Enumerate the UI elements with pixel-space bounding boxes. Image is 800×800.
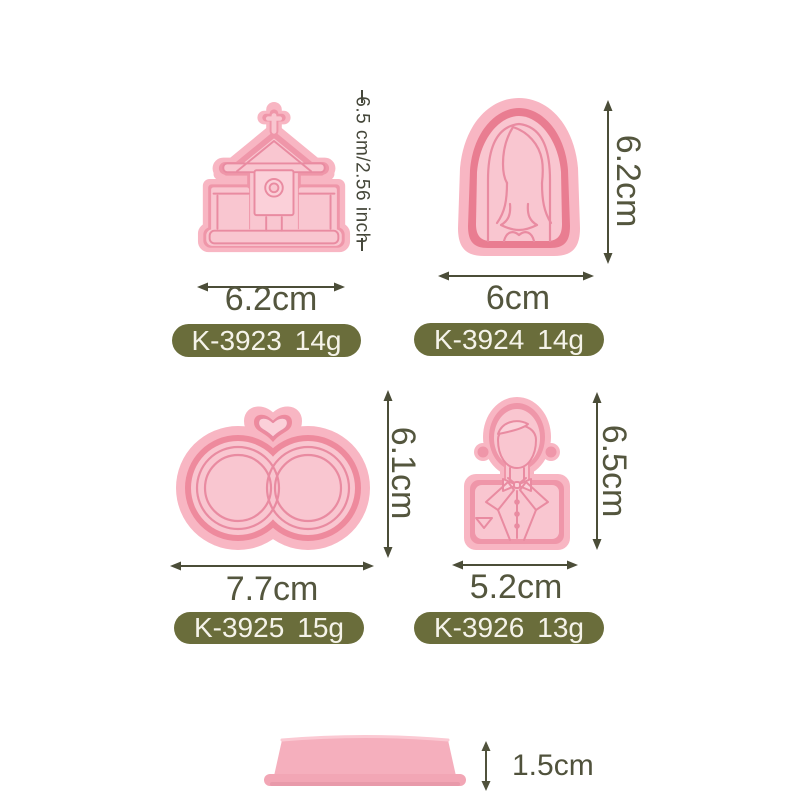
rings-height-dimension-label: 6.1cm <box>386 427 420 520</box>
disc-height-arrow-icon <box>479 740 493 792</box>
church-height-dimension-label: 6.5 cm/2.56 inch <box>353 96 372 243</box>
church-product-weight: 14g <box>295 327 342 355</box>
bride-product-code: K-3924 <box>434 326 524 354</box>
rings-product-weight: 15g <box>297 614 344 642</box>
groom-product-weight: 13g <box>537 614 584 642</box>
bride-product-weight: 14g <box>537 326 584 354</box>
rings-cutter-icon <box>172 390 374 560</box>
bride-width-dimension-label: 6cm <box>442 281 594 315</box>
base-disc-icon <box>262 730 468 796</box>
groom-height-dimension-label: 6.5cm <box>597 425 631 518</box>
groom-cutter-icon <box>458 390 590 555</box>
measure-tick-bottom <box>361 238 363 251</box>
church-width-dimension-label: 6.2cm <box>196 282 346 316</box>
bride-product-badge: K-3924 14g <box>414 323 604 356</box>
product-showcase: 6.5 cm/2.56 inch 6.2cm K-3923 14g 6.2cm <box>0 0 800 800</box>
church-product-code: K-3923 <box>191 327 281 355</box>
groom-product-code: K-3926 <box>434 614 524 642</box>
bride-height-dimension-label: 6.2cm <box>611 135 645 228</box>
disc-height-dimension-label: 1.5cm <box>512 751 594 781</box>
church-product-badge: K-3923 14g <box>172 324 361 357</box>
rings-product-code: K-3925 <box>194 614 284 642</box>
groom-width-dimension-label: 5.2cm <box>440 570 592 604</box>
rings-width-dimension-label: 7.7cm <box>197 572 347 606</box>
church-cutter-icon <box>196 102 352 258</box>
bride-cutter-icon <box>444 94 594 266</box>
groom-product-badge: K-3926 13g <box>414 612 604 644</box>
rings-product-badge: K-3925 15g <box>174 612 364 644</box>
